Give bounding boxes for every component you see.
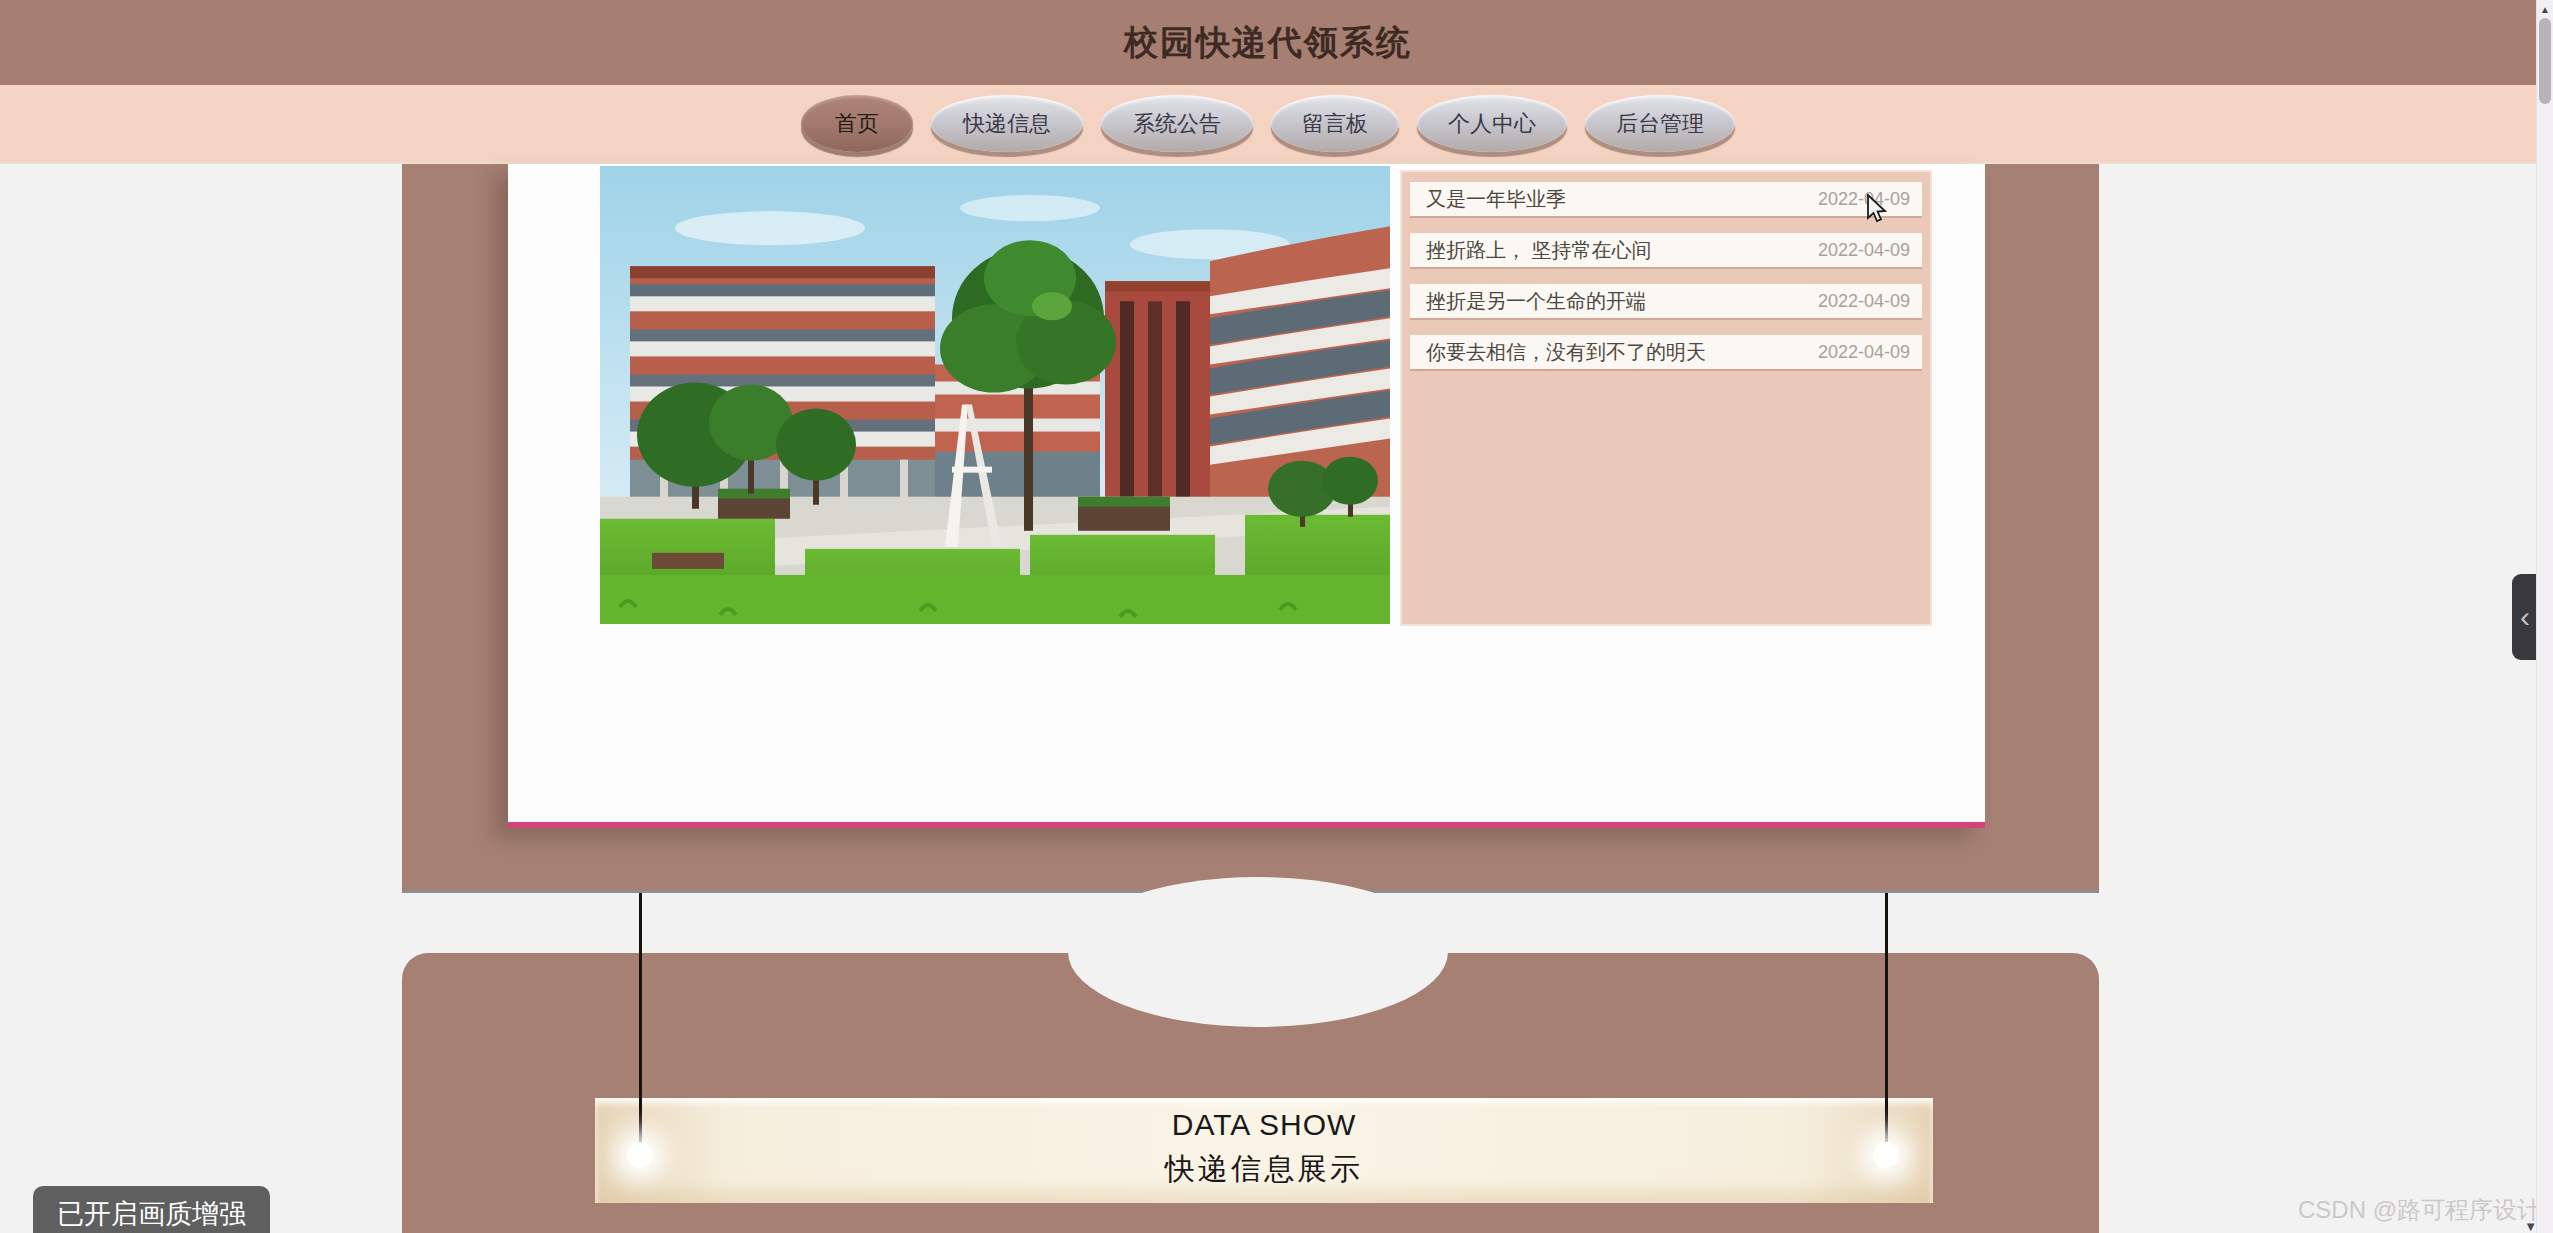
announcement-title: 又是一年毕业季: [1426, 186, 1566, 213]
scroll-up-arrow-icon[interactable]: ▲: [2537, 0, 2553, 18]
page-title: 校园快递代领系统: [1124, 20, 1412, 66]
announcement-panel: 又是一年毕业季 2022-04-09 挫折路上， 坚持常在心间 2022-04-…: [1400, 170, 1932, 626]
scrollbar-track[interactable]: ▲: [2536, 0, 2553, 1233]
announcement-title: 挫折路上， 坚持常在心间: [1426, 237, 1652, 264]
announcement-title: 你要去相信，没有到不了的明天: [1426, 339, 1706, 366]
announcement-item[interactable]: 挫折路上， 坚持常在心间 2022-04-09: [1410, 233, 1922, 267]
string-knob-left: [627, 1142, 653, 1168]
hanging-string-right: [1885, 893, 1888, 1155]
data-show-title-en: DATA SHOW: [595, 1108, 1933, 1142]
announcement-title: 挫折是另一个生命的开端: [1426, 288, 1646, 315]
campus-photo: [600, 166, 1390, 624]
announcement-item[interactable]: 挫折是另一个生命的开端 2022-04-09: [1410, 284, 1922, 318]
nav-tab-admin[interactable]: 后台管理: [1585, 95, 1735, 152]
data-show-title-zh: 快递信息展示: [595, 1149, 1933, 1190]
sidebar-collapse-tab[interactable]: ‹: [2512, 574, 2538, 660]
announcement-item[interactable]: 又是一年毕业季 2022-04-09: [1410, 182, 1922, 216]
main-nav: 首页 快递信息 系统公告 留言板 个人中心 后台管理: [0, 85, 2536, 164]
chevron-left-icon: ‹: [2520, 600, 2530, 634]
app-header: 校园快递代领系统: [0, 0, 2536, 85]
quality-enhance-badge: 已开启画质增强: [33, 1186, 270, 1233]
announcement-date: 2022-04-09: [1818, 240, 1910, 261]
nav-tab-system-notice[interactable]: 系统公告: [1101, 95, 1253, 152]
decorative-notch: [1068, 877, 1448, 1027]
content-card: 又是一年毕业季 2022-04-09 挫折路上， 坚持常在心间 2022-04-…: [508, 164, 1985, 828]
nav-tab-express-info[interactable]: 快递信息: [931, 95, 1083, 152]
announcement-date: 2022-04-09: [1818, 342, 1910, 363]
main-section: 又是一年毕业季 2022-04-09 挫折路上， 坚持常在心间 2022-04-…: [402, 164, 2099, 893]
data-show-banner: DATA SHOW 快递信息展示: [595, 1098, 1933, 1203]
hanging-string-left: [639, 893, 642, 1155]
nav-tab-home[interactable]: 首页: [801, 95, 913, 152]
watermark: CSDN @路可程序设计: [2298, 1194, 2541, 1226]
scrollbar-thumb[interactable]: [2539, 18, 2551, 104]
nav-tab-message-board[interactable]: 留言板: [1271, 95, 1399, 152]
mouse-cursor: [1866, 194, 1894, 224]
announcement-date: 2022-04-09: [1818, 189, 1910, 210]
announcement-item[interactable]: 你要去相信，没有到不了的明天 2022-04-09: [1410, 335, 1922, 369]
announcement-date: 2022-04-09: [1818, 291, 1910, 312]
nav-tab-personal-center[interactable]: 个人中心: [1417, 95, 1567, 152]
string-knob-right: [1873, 1142, 1899, 1168]
